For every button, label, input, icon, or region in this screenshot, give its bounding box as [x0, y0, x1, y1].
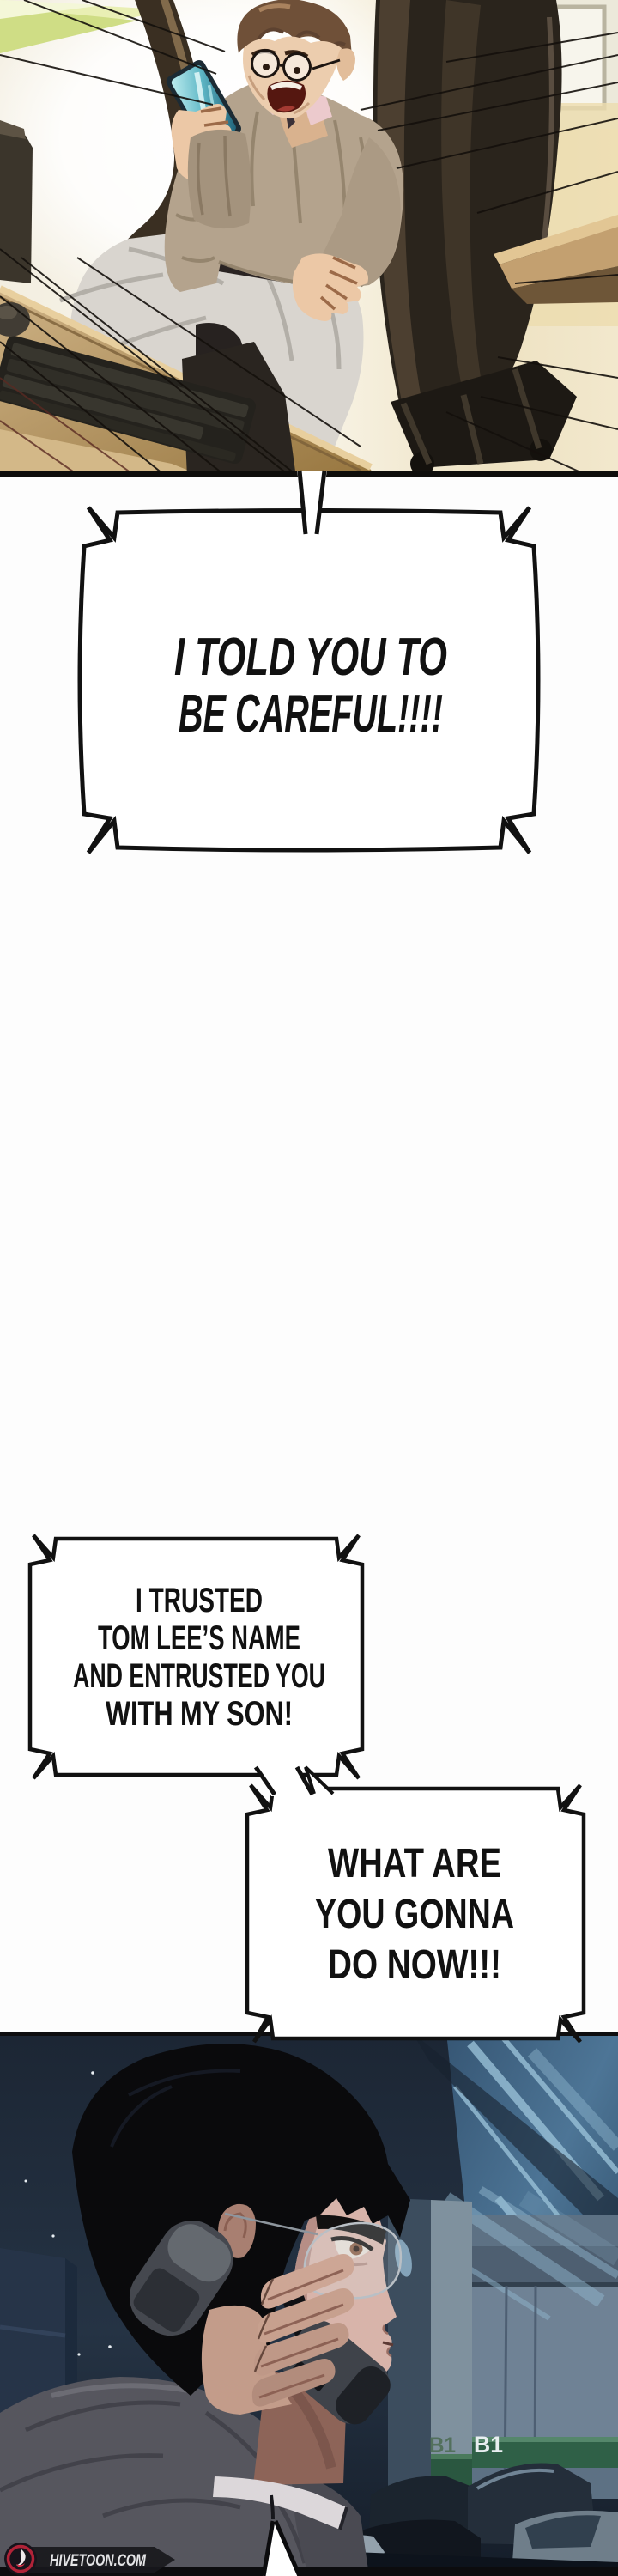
svg-text:AND ENTRUSTED YOU: AND ENTRUSTED YOU	[73, 1657, 325, 1695]
svg-text:B1: B1	[474, 2432, 503, 2458]
svg-text:BE CAREFUL!!!!: BE CAREFUL!!!!	[179, 684, 443, 744]
svg-text:WHAT ARE: WHAT ARE	[328, 1841, 501, 1886]
svg-text:I TRUSTED: I TRUSTED	[136, 1582, 263, 1619]
svg-text:WITH MY SON!: WITH MY SON!	[106, 1695, 293, 1733]
svg-text:HIVETOON.COM: HIVETOON.COM	[50, 2552, 147, 2570]
svg-text:I TOLD YOU TO: I TOLD YOU TO	[174, 628, 447, 687]
svg-text:B1: B1	[429, 2433, 456, 2458]
svg-text:DO NOW!!!: DO NOW!!!	[328, 1942, 501, 1988]
svg-text:TOM LEE’S NAME: TOM LEE’S NAME	[98, 1619, 300, 1657]
svg-text:YOU GONNA: YOU GONNA	[315, 1892, 514, 1937]
